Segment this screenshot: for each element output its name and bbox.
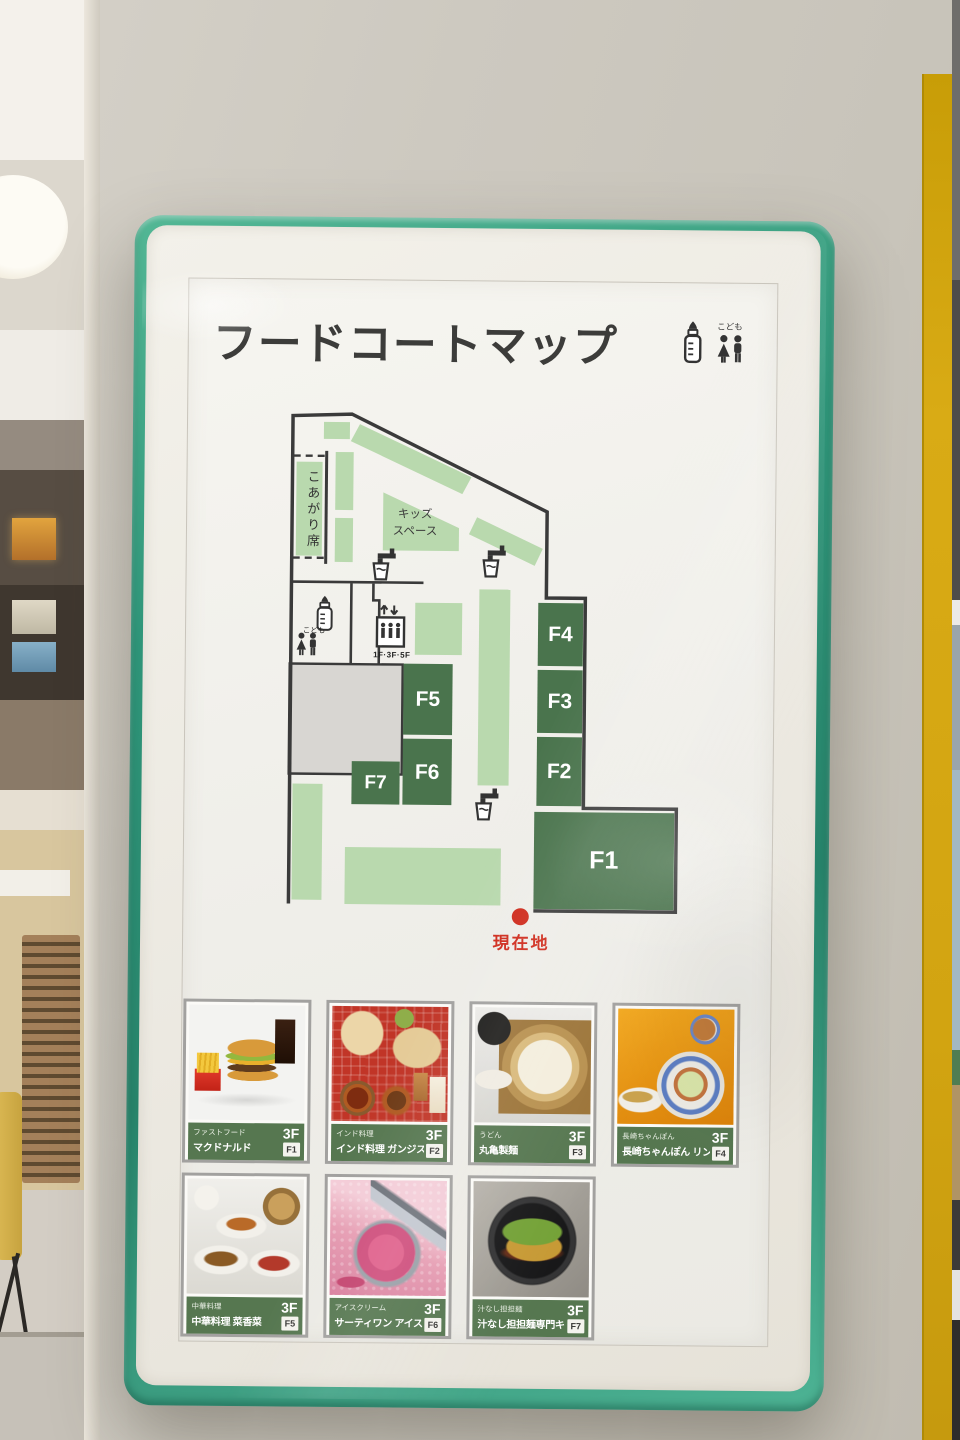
store-floor: 3F <box>569 1128 585 1144</box>
store-unit-badge: F2 <box>426 1144 443 1158</box>
stall-f2-label: F2 <box>536 737 582 806</box>
store-photo <box>617 1009 734 1125</box>
store-category: 中華料理 <box>191 1301 221 1312</box>
store-floor: 3F <box>426 1127 442 1143</box>
store-card-f7: 汁なし担担麺 汁なし担担麺専門キング軒 3F F7 <box>466 1175 596 1340</box>
store-name: インド料理 ガンジス川 <box>336 1140 424 1156</box>
printed-sheet: フードコートマップ こども <box>178 278 778 1348</box>
store-cards-grid: ファストフード マクドナルド 3F F1 インド料理 インド料理 ガンジス川 3… <box>180 999 740 1342</box>
store-photo <box>187 1179 304 1295</box>
store-name: 汁なし担担麺専門キング軒 <box>477 1315 565 1331</box>
store-unit-badge: F7 <box>567 1319 584 1333</box>
store-name: マクドナルド <box>193 1139 251 1155</box>
current-location-label: 現在地 <box>475 928 567 954</box>
store-unit-badge: F4 <box>712 1147 729 1161</box>
kids-restroom-icons <box>718 335 742 363</box>
store-name: 中華料理 菜香菜 <box>191 1313 262 1329</box>
store-category: 汁なし担担麺 <box>477 1303 522 1314</box>
store-unit-badge: F1 <box>283 1142 300 1156</box>
water-fountain-icon <box>476 788 498 819</box>
chair <box>0 1092 22 1260</box>
store-card-f5: 中華料理 中華料理 菜香菜 3F F5 <box>180 1172 310 1337</box>
foodcourt-map-sign: フードコートマップ こども <box>124 215 835 1412</box>
store-card-f1: ファストフード マクドナルド 3F F1 <box>182 999 312 1164</box>
store-photo <box>188 1005 305 1121</box>
service-area-block <box>289 664 403 775</box>
current-location-dot <box>512 908 529 925</box>
store-label-band: ファストフード マクドナルド 3F F1 <box>188 1123 304 1161</box>
stall-f5-label: F5 <box>403 664 453 735</box>
header-amenity-icons: こども <box>683 319 747 370</box>
store-unit-badge: F3 <box>569 1145 586 1159</box>
store-category: アイスクリーム <box>334 1302 386 1313</box>
counter-top <box>0 870 70 896</box>
stall-f4-label: F4 <box>538 603 584 666</box>
store-card-f4: 長崎ちゃんぽん 長崎ちゃんぽん リンガーハット 3F F4 <box>611 1003 741 1168</box>
stall-f1-label: F1 <box>533 812 674 910</box>
store-category: インド料理 <box>336 1128 374 1139</box>
sign-inner-frame: フードコートマップ こども <box>136 225 821 1391</box>
store-floor: 3F <box>424 1301 440 1317</box>
store-floor: 3F <box>567 1302 583 1318</box>
store-floor: 3F <box>283 1125 299 1141</box>
floorplan-map: F4 F3 F2 F1 F5 F6 F7 こあがり席 キッズ スペース こども … <box>277 403 702 967</box>
store-name: サーティワン アイスクリーム <box>334 1314 422 1330</box>
store-category: 長崎ちゃんぽん <box>622 1131 675 1143</box>
kids-restroom-caption: こども <box>290 625 338 636</box>
menu-screen <box>12 518 56 560</box>
store-label-band: アイスクリーム サーティワン アイスクリーム 3F F6 <box>329 1298 445 1336</box>
store-unit-badge: F5 <box>281 1316 298 1330</box>
kids-space-label: キッズ スペース <box>375 506 455 540</box>
koagari-area-label: こあがり席 <box>296 461 323 559</box>
stall-f6-label: F6 <box>402 739 452 805</box>
page-title: フードコートマップ <box>213 307 619 375</box>
store-unit-badge: F6 <box>424 1318 441 1332</box>
wood-vent-panel <box>22 935 80 1183</box>
yellow-pillar-stripe <box>922 74 956 1440</box>
store-floor: 3F <box>712 1130 728 1146</box>
store-card-f2: インド料理 インド料理 ガンジス川 3F F2 <box>325 1000 455 1165</box>
kids-restroom-label: こども <box>717 322 743 332</box>
menu-screen <box>12 642 56 672</box>
stall-f7-label: F7 <box>351 761 399 804</box>
photo-stage: フードコートマップ こども <box>0 0 960 1440</box>
store-label-band: 長崎ちゃんぽん 長崎ちゃんぽん リンガーハット 3F F4 <box>617 1127 733 1165</box>
store-photo <box>330 1180 447 1296</box>
store-label-band: 中華料理 中華料理 菜香菜 3F F5 <box>186 1297 302 1335</box>
store-label-band: うどん 丸亀製麺 3F F3 <box>474 1125 590 1163</box>
store-category: うどん <box>479 1129 502 1140</box>
store-label-band: インド料理 インド料理 ガンジス川 3F F2 <box>331 1124 447 1162</box>
right-interior-edge <box>952 0 960 1440</box>
store-floor: 3F <box>281 1299 297 1315</box>
store-category: ファストフード <box>193 1127 246 1139</box>
store-name: 丸亀製麺 <box>479 1141 518 1156</box>
store-name: 長崎ちゃんぽん リンガーハット <box>622 1143 710 1159</box>
floor-edge <box>0 1332 92 1337</box>
store-label-band: 汁なし担担麺 汁なし担担麺専門キング軒 3F F7 <box>472 1299 588 1337</box>
store-card-f3: うどん 丸亀製麺 3F F3 <box>468 1001 598 1166</box>
store-card-f6: アイスクリーム サーティワン アイスクリーム 3F F6 <box>323 1174 453 1339</box>
water-fountain-icon <box>484 545 506 576</box>
store-photo <box>473 1181 590 1297</box>
store-photo <box>331 1006 448 1122</box>
wall-corner <box>84 0 100 1440</box>
koagari-wall <box>326 451 327 564</box>
stall-f3-label: F3 <box>537 670 583 733</box>
mall-interior-strip <box>0 0 92 1440</box>
kids-restroom-icons <box>297 633 316 656</box>
store-photo <box>474 1007 591 1123</box>
menu-screen <box>12 600 56 634</box>
water-fountain-icon <box>374 548 396 579</box>
baby-bottle-icon <box>685 321 700 362</box>
elevator-floors-label: 1F·3F·5F <box>364 650 420 660</box>
elevator-icon <box>377 605 404 646</box>
